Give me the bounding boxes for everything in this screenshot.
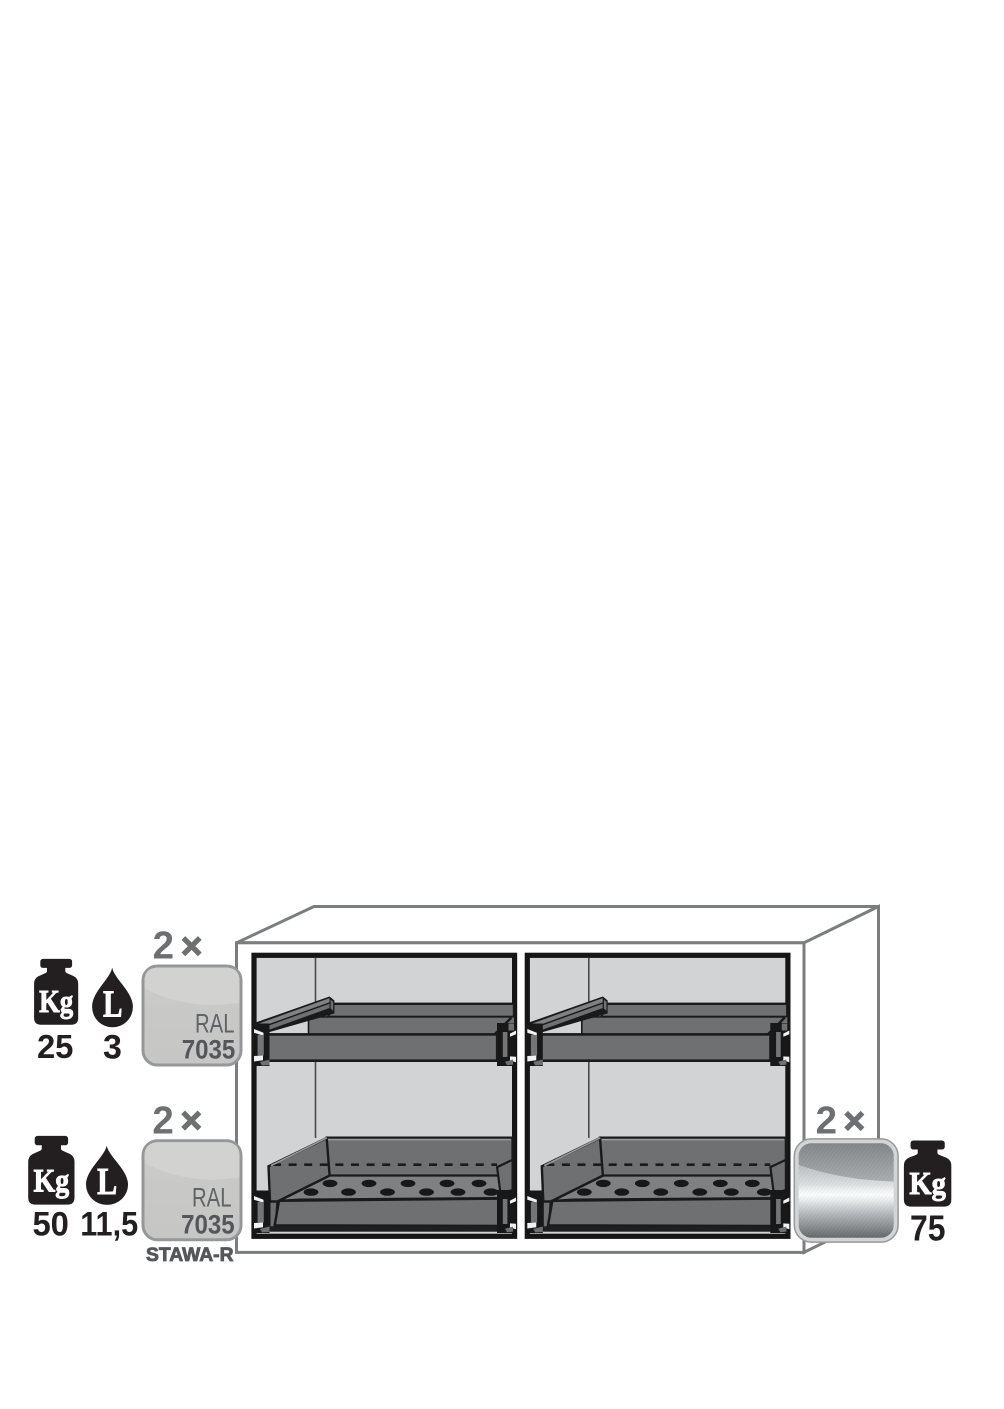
svg-text:75: 75 xyxy=(910,1207,946,1248)
svg-text:2: 2 xyxy=(152,1099,173,1142)
svg-text:11,5: 11,5 xyxy=(80,1206,138,1244)
svg-text:STAWA-R: STAWA-R xyxy=(146,1244,234,1266)
svg-text:50: 50 xyxy=(32,1206,69,1244)
svg-text:7035: 7035 xyxy=(181,1209,235,1239)
svg-text:RAL: RAL xyxy=(192,1183,232,1213)
svg-text:7035: 7035 xyxy=(182,1034,236,1064)
svg-text:2: 2 xyxy=(153,924,174,967)
svg-text:3: 3 xyxy=(103,1029,122,1067)
svg-text:25: 25 xyxy=(37,1028,74,1065)
svg-text:2: 2 xyxy=(816,1100,837,1143)
